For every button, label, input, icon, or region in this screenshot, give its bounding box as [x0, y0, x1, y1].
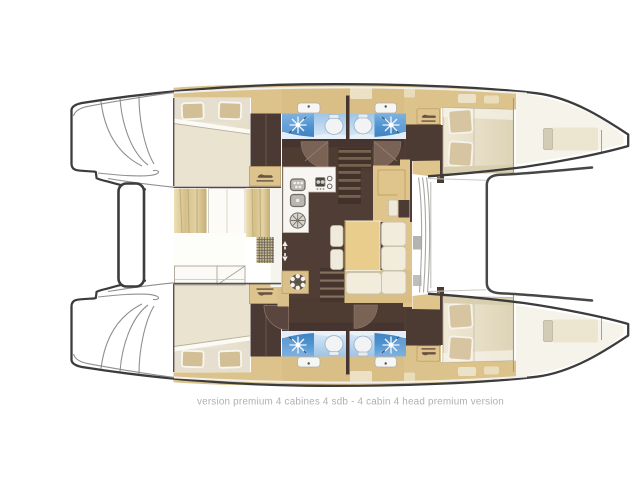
svg-text:version premium 4 cabines 4 sd: version premium 4 cabines 4 sdb - 4 cabi…: [197, 397, 504, 408]
